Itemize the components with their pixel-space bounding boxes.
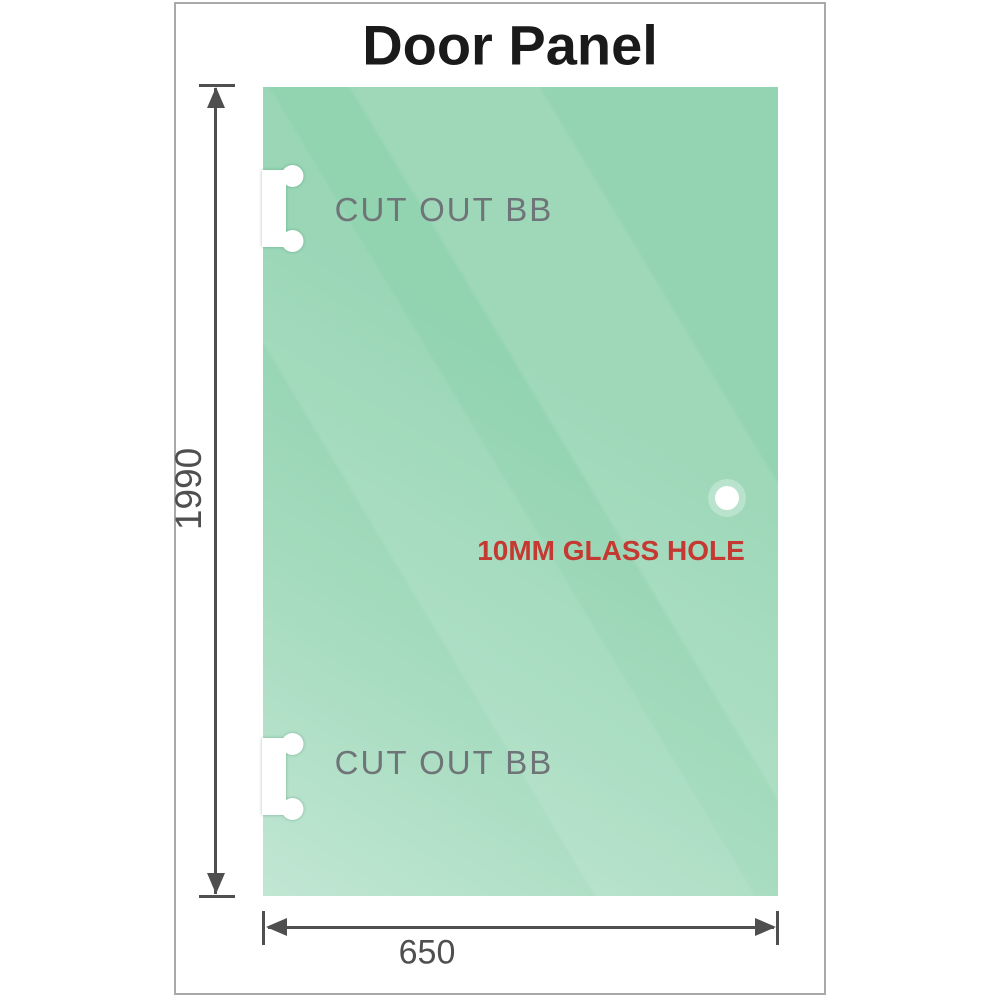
page-title: Door Panel: [362, 13, 658, 78]
width-dimension-line: [268, 926, 774, 929]
arrow-left-icon: [266, 918, 287, 936]
height-dimension-value: 1990: [168, 448, 210, 530]
hinge-cutout-bottom-icon: [262, 732, 306, 822]
arrow-down-icon: [207, 873, 225, 894]
arrow-right-icon: [755, 918, 776, 936]
hinge-cutout-top-icon: [262, 164, 306, 254]
arrow-up-icon: [207, 87, 225, 108]
height-dimension-cap-bottom: [199, 895, 235, 898]
glass-hole-icon: [715, 486, 739, 510]
width-dimension-cap-left: [262, 911, 265, 945]
width-dimension-value: 650: [399, 934, 456, 973]
glass-hole-label: 10MM GLASS HOLE: [477, 535, 745, 567]
cutout-label-bottom: CUT OUT BB: [335, 744, 554, 782]
cutout-label-top: CUT OUT BB: [335, 191, 554, 229]
width-dimension-cap-right: [776, 911, 779, 945]
height-dimension-line: [214, 88, 217, 894]
